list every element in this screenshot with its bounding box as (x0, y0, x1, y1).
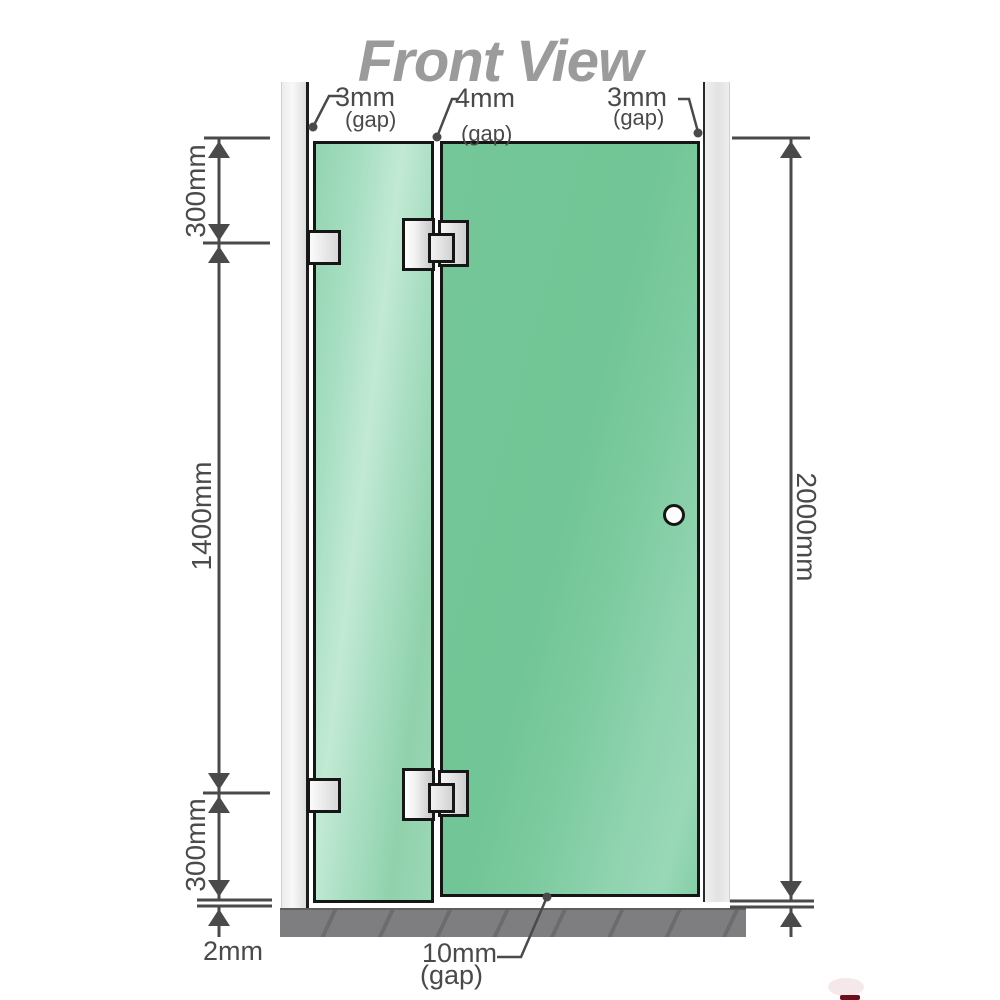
gap-label-middle-value: 4mm (455, 85, 515, 112)
gap-label-middle-suffix: (gap) (461, 123, 512, 145)
logo-smudge (828, 978, 864, 996)
logo-fragment (840, 995, 860, 1000)
shower-screen-front-view-diagram: Front View (0, 0, 1000, 1000)
dimension-arrowheads (208, 141, 802, 927)
dimension-lines (0, 0, 1000, 1000)
gap-label-left-suffix: (gap) (345, 109, 396, 131)
gap-label-right-suffix: (gap) (613, 107, 664, 129)
leader-lines (313, 96, 698, 957)
leader-dots (309, 123, 703, 902)
dimension-label-2mm: 2mm (203, 938, 263, 965)
dimension-label-300mm-bottom: 300mm (182, 798, 210, 891)
dimension-label-2000mm: 2000mm (792, 473, 820, 582)
dimension-label-300mm-top: 300mm (182, 144, 210, 237)
dimension-label-1400mm: 1400mm (188, 462, 216, 571)
gap-label-bottom-suffix: (gap) (420, 962, 483, 989)
